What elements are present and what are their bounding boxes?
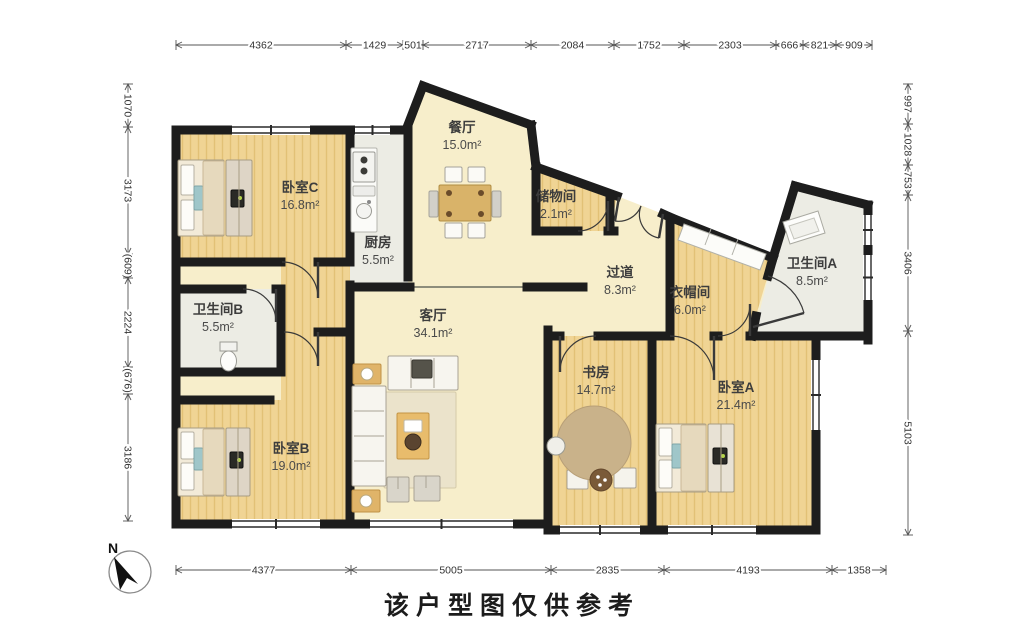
room-dining-name: 餐厅 bbox=[448, 119, 476, 135]
living-decor bbox=[360, 495, 372, 507]
room-storage-name: 储物间 bbox=[535, 188, 577, 204]
bath-b-toilet-tank bbox=[220, 342, 237, 351]
window bbox=[370, 519, 513, 529]
dimension-segment: 2084 bbox=[531, 40, 614, 52]
room-bathroom-b-area: 5.5m² bbox=[202, 320, 234, 334]
floorplan: 卧室C16.8m²厨房5.5m²餐厅15.0m²储物间2.1m²过道8.3m²卫… bbox=[0, 0, 1024, 626]
bed-b-tv bbox=[230, 452, 243, 468]
room-corridor-name: 过道 bbox=[607, 264, 635, 280]
dining-chair bbox=[445, 167, 462, 182]
bed-a-tv-light bbox=[721, 454, 725, 458]
dimension-value: 2084 bbox=[561, 40, 585, 52]
dimension-value: 1028 bbox=[902, 133, 914, 157]
dimension-value: 2303 bbox=[718, 40, 742, 52]
bed-c-pillow bbox=[181, 165, 194, 195]
dimension-segment: (676) bbox=[122, 367, 134, 394]
caption: 该户型图仅供参考 bbox=[0, 586, 1024, 622]
dimension-segment: 1752 bbox=[614, 40, 684, 52]
room-study-area: 14.7m² bbox=[577, 383, 616, 397]
dimension-value: 753 bbox=[902, 171, 914, 189]
dimension-value: 4193 bbox=[736, 565, 760, 577]
room-bedroom-b-name: 卧室B bbox=[273, 440, 310, 456]
dining-bench bbox=[429, 191, 438, 217]
study-cup bbox=[596, 475, 600, 479]
room-cloakroom-name: 衣帽间 bbox=[670, 284, 711, 300]
dimension-value: 2224 bbox=[122, 311, 134, 335]
dimension-segment: 2224 bbox=[122, 278, 134, 367]
dining-plate bbox=[478, 211, 484, 217]
room-living-name: 客厅 bbox=[419, 307, 447, 323]
kitchen-burner bbox=[361, 168, 368, 175]
window bbox=[668, 525, 756, 535]
dimension-segment: 753 bbox=[902, 165, 914, 195]
room-bedroom-a-name: 卧室A bbox=[718, 379, 755, 395]
dimension-value: 909 bbox=[845, 40, 863, 52]
dimension-segment: 3186 bbox=[122, 394, 134, 521]
dimension-segment: 2835 bbox=[551, 565, 664, 577]
room-study-name: 书房 bbox=[583, 364, 610, 380]
bed-c-duvet bbox=[203, 161, 224, 235]
dimension-segment: 2717 bbox=[423, 40, 531, 52]
dimension-segment: 4362 bbox=[176, 40, 346, 52]
dimension-value: 2835 bbox=[596, 565, 620, 577]
dimension-value: 821 bbox=[811, 40, 829, 52]
window bbox=[863, 215, 873, 245]
bed-a-pillow bbox=[659, 460, 672, 488]
dimension-segment: 1070 bbox=[122, 84, 134, 127]
room-corridor-area: 8.3m² bbox=[604, 283, 636, 297]
dimension-segment: 4377 bbox=[176, 565, 351, 577]
dining-plate bbox=[446, 211, 452, 217]
dimension-value: 1358 bbox=[847, 565, 871, 577]
bed-c-pillow bbox=[181, 200, 194, 230]
floorplan-svg: 卧室C16.8m²厨房5.5m²餐厅15.0m²储物间2.1m²过道8.3m²卫… bbox=[0, 0, 1024, 626]
window bbox=[232, 519, 320, 529]
room-bathroom-a-area: 8.5m² bbox=[796, 274, 828, 288]
dimension-value: 3173 bbox=[122, 179, 134, 203]
kitchen-faucet bbox=[367, 200, 371, 204]
dining-plate bbox=[478, 190, 484, 196]
dimension-value: 2717 bbox=[465, 40, 489, 52]
study-cup bbox=[598, 483, 602, 487]
dimension-segment: 3173 bbox=[122, 127, 134, 254]
dimension-value: (676) bbox=[122, 368, 134, 393]
room-bathroom-a-name: 卫生间A bbox=[787, 255, 837, 271]
dining-chair bbox=[445, 223, 462, 238]
dimensions-left: 10703173(609)2224(676)3186 bbox=[122, 84, 134, 521]
window bbox=[355, 125, 390, 135]
room-bedroom-b-area: 19.0m² bbox=[272, 459, 311, 473]
room-bathroom-b-name: 卫生间B bbox=[193, 301, 243, 317]
window bbox=[811, 360, 821, 430]
room-dining-area: 15.0m² bbox=[443, 138, 482, 152]
dimension-segment: 5005 bbox=[351, 565, 551, 577]
dimension-value: 1070 bbox=[122, 94, 134, 118]
room-cloakroom-area: 6.0m² bbox=[674, 303, 706, 317]
dimension-value: 4362 bbox=[249, 40, 273, 52]
bed-c-throw bbox=[194, 186, 203, 210]
dimension-value: 4377 bbox=[252, 565, 276, 577]
dimension-segment: 1358 bbox=[832, 565, 886, 577]
dimensions-top: 436214295012717208417522303666821909 bbox=[176, 40, 872, 52]
dimension-value: 666 bbox=[781, 40, 799, 52]
room-kitchen-area: 5.5m² bbox=[362, 253, 394, 267]
living-decor bbox=[361, 368, 373, 380]
bed-a-pillow bbox=[659, 428, 672, 456]
dimension-value: 3186 bbox=[122, 446, 134, 470]
dimension-segment: 821 bbox=[803, 40, 836, 52]
room-bedroom-a-area: 21.4m² bbox=[717, 398, 756, 412]
bath-b-toilet-bowl bbox=[221, 351, 237, 371]
dining-chair bbox=[468, 223, 485, 238]
study-rug bbox=[557, 406, 631, 480]
bed-c-tv bbox=[231, 190, 244, 207]
dimensions-bottom: 43775005283541931358 bbox=[176, 565, 886, 577]
compass-north-label: N bbox=[108, 540, 118, 556]
living-ottoman bbox=[414, 476, 440, 501]
dimension-segment: 1028 bbox=[902, 124, 914, 165]
dimension-segment: 5103 bbox=[902, 331, 914, 535]
wall bbox=[531, 125, 536, 167]
dimension-segment: 997 bbox=[902, 84, 914, 124]
dimension-value: 1752 bbox=[637, 40, 661, 52]
room-bedroom-c-area: 16.8m² bbox=[281, 198, 320, 212]
room-bedroom-c-name: 卧室C bbox=[282, 179, 319, 195]
dimension-value: 997 bbox=[902, 95, 914, 113]
dimension-segment: 3406 bbox=[902, 195, 914, 331]
living-vase bbox=[405, 434, 421, 450]
dimension-value: 5103 bbox=[902, 421, 914, 445]
room-storage-area: 2.1m² bbox=[540, 207, 572, 221]
study-cup bbox=[603, 478, 607, 482]
dimensions-right: 997102875334065103 bbox=[902, 84, 914, 535]
bed-a-throw bbox=[672, 444, 681, 468]
bed-b-throw bbox=[194, 448, 203, 470]
dining-chair bbox=[468, 167, 485, 182]
room-kitchen-name: 厨房 bbox=[365, 234, 392, 250]
dimension-segment: (609) bbox=[122, 254, 134, 279]
kitchen-burner bbox=[361, 157, 368, 164]
window bbox=[560, 525, 640, 535]
dimension-value: 1429 bbox=[363, 40, 387, 52]
bed-a-duvet bbox=[681, 425, 706, 491]
living-dark-pillow bbox=[412, 360, 432, 378]
study-chair bbox=[547, 437, 565, 455]
dimension-segment: 4193 bbox=[664, 565, 832, 577]
dimension-value: 501 bbox=[404, 40, 422, 52]
window bbox=[232, 125, 310, 135]
window bbox=[863, 255, 873, 300]
kitchen-board bbox=[353, 186, 375, 196]
dimension-segment: 501 bbox=[403, 40, 423, 52]
dimension-value: 3406 bbox=[902, 251, 914, 275]
bed-b-pillow bbox=[181, 463, 194, 490]
study-round-table bbox=[590, 469, 612, 491]
dimension-value: (609) bbox=[122, 254, 134, 279]
wall bbox=[768, 258, 773, 276]
room-living-area: 34.1m² bbox=[414, 326, 453, 340]
living-tray bbox=[404, 420, 422, 432]
bed-b-pillow bbox=[181, 432, 194, 459]
dimension-segment: 1429 bbox=[346, 40, 403, 52]
dimension-segment: 666 bbox=[776, 40, 803, 52]
dining-plate bbox=[446, 190, 452, 196]
kitchen-sink bbox=[357, 204, 372, 219]
dimension-segment: 909 bbox=[836, 40, 872, 52]
dining-bench bbox=[492, 191, 501, 217]
bed-b-duvet bbox=[203, 429, 224, 495]
dimension-value: 5005 bbox=[439, 565, 463, 577]
dimension-segment: 2303 bbox=[684, 40, 776, 52]
